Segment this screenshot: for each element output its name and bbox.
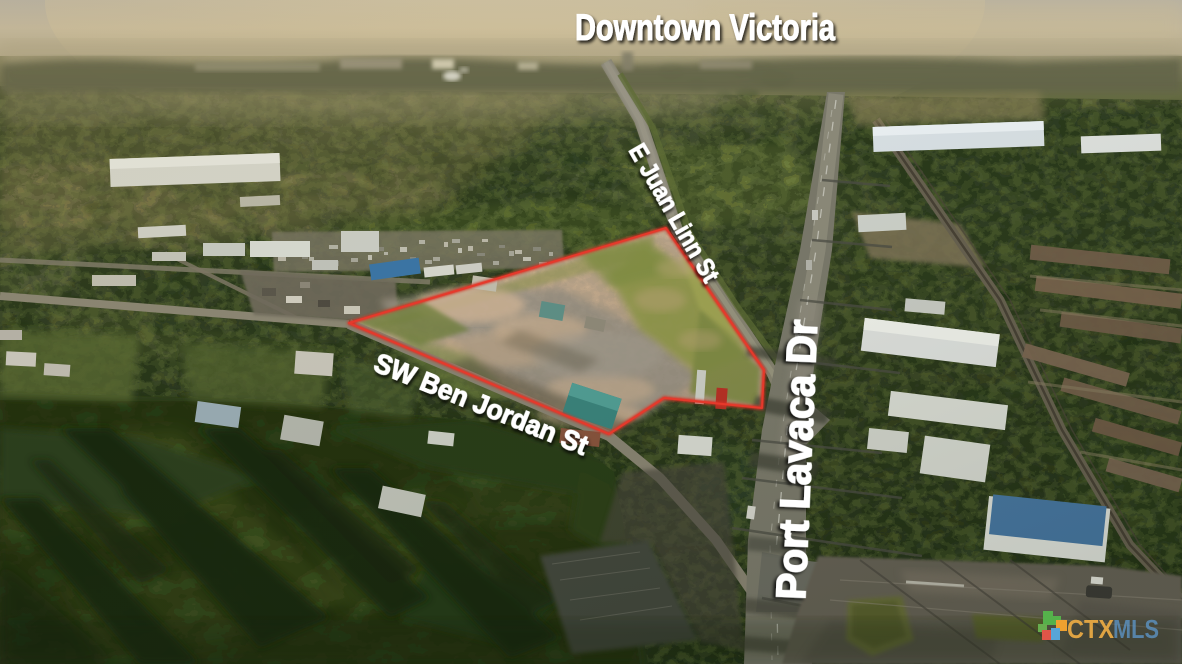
svg-text:CTX: CTX bbox=[1067, 614, 1115, 644]
svg-text:Downtown Victoria: Downtown Victoria bbox=[575, 7, 835, 48]
svg-text:MLS: MLS bbox=[1113, 614, 1159, 644]
